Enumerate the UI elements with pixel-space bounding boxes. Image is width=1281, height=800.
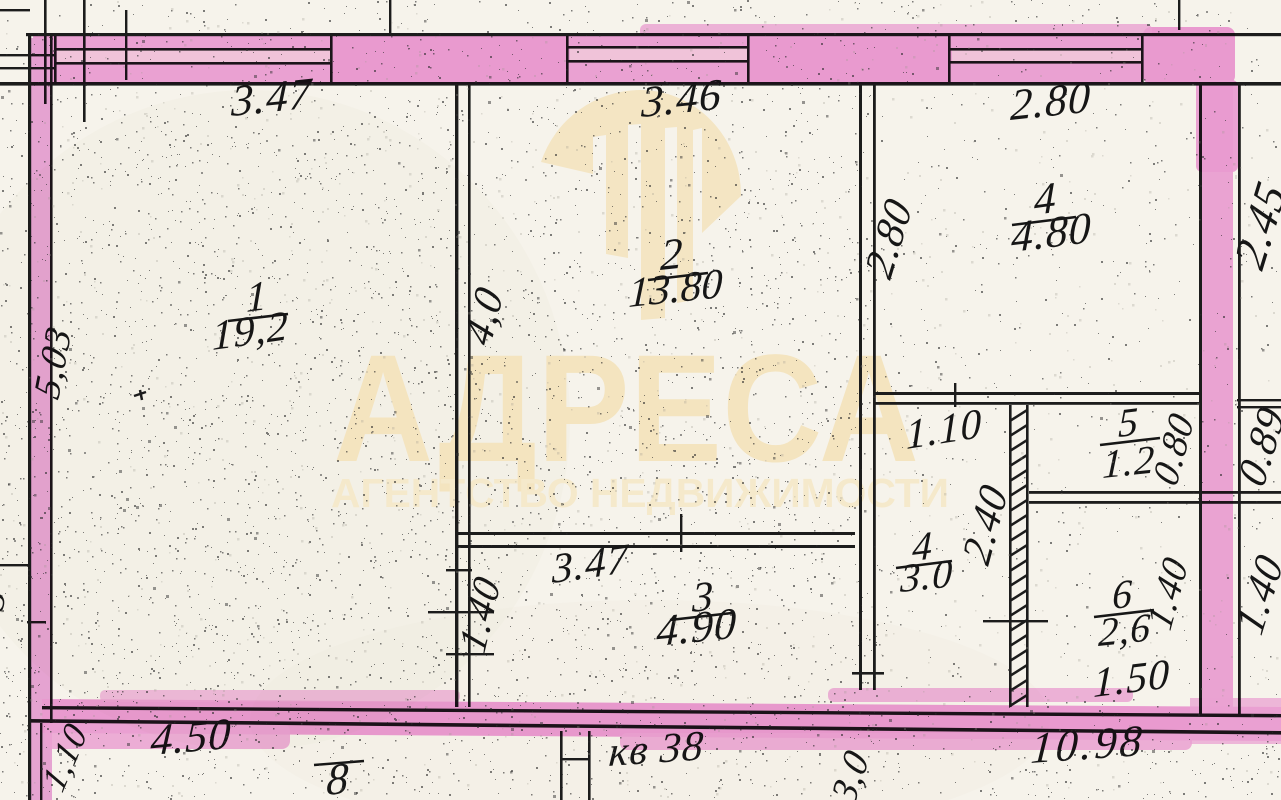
svg-text:АДРЕСА: АДРЕСА: [333, 323, 919, 494]
svg-text:4.80: 4.80: [1011, 203, 1092, 262]
svg-text:1.2: 1.2: [1102, 436, 1156, 487]
svg-text:8: 8: [326, 753, 351, 800]
svg-text:4.90: 4.90: [656, 598, 738, 656]
svg-text:3.0: 3.0: [899, 550, 954, 601]
svg-text:13.80: 13.80: [628, 260, 724, 317]
